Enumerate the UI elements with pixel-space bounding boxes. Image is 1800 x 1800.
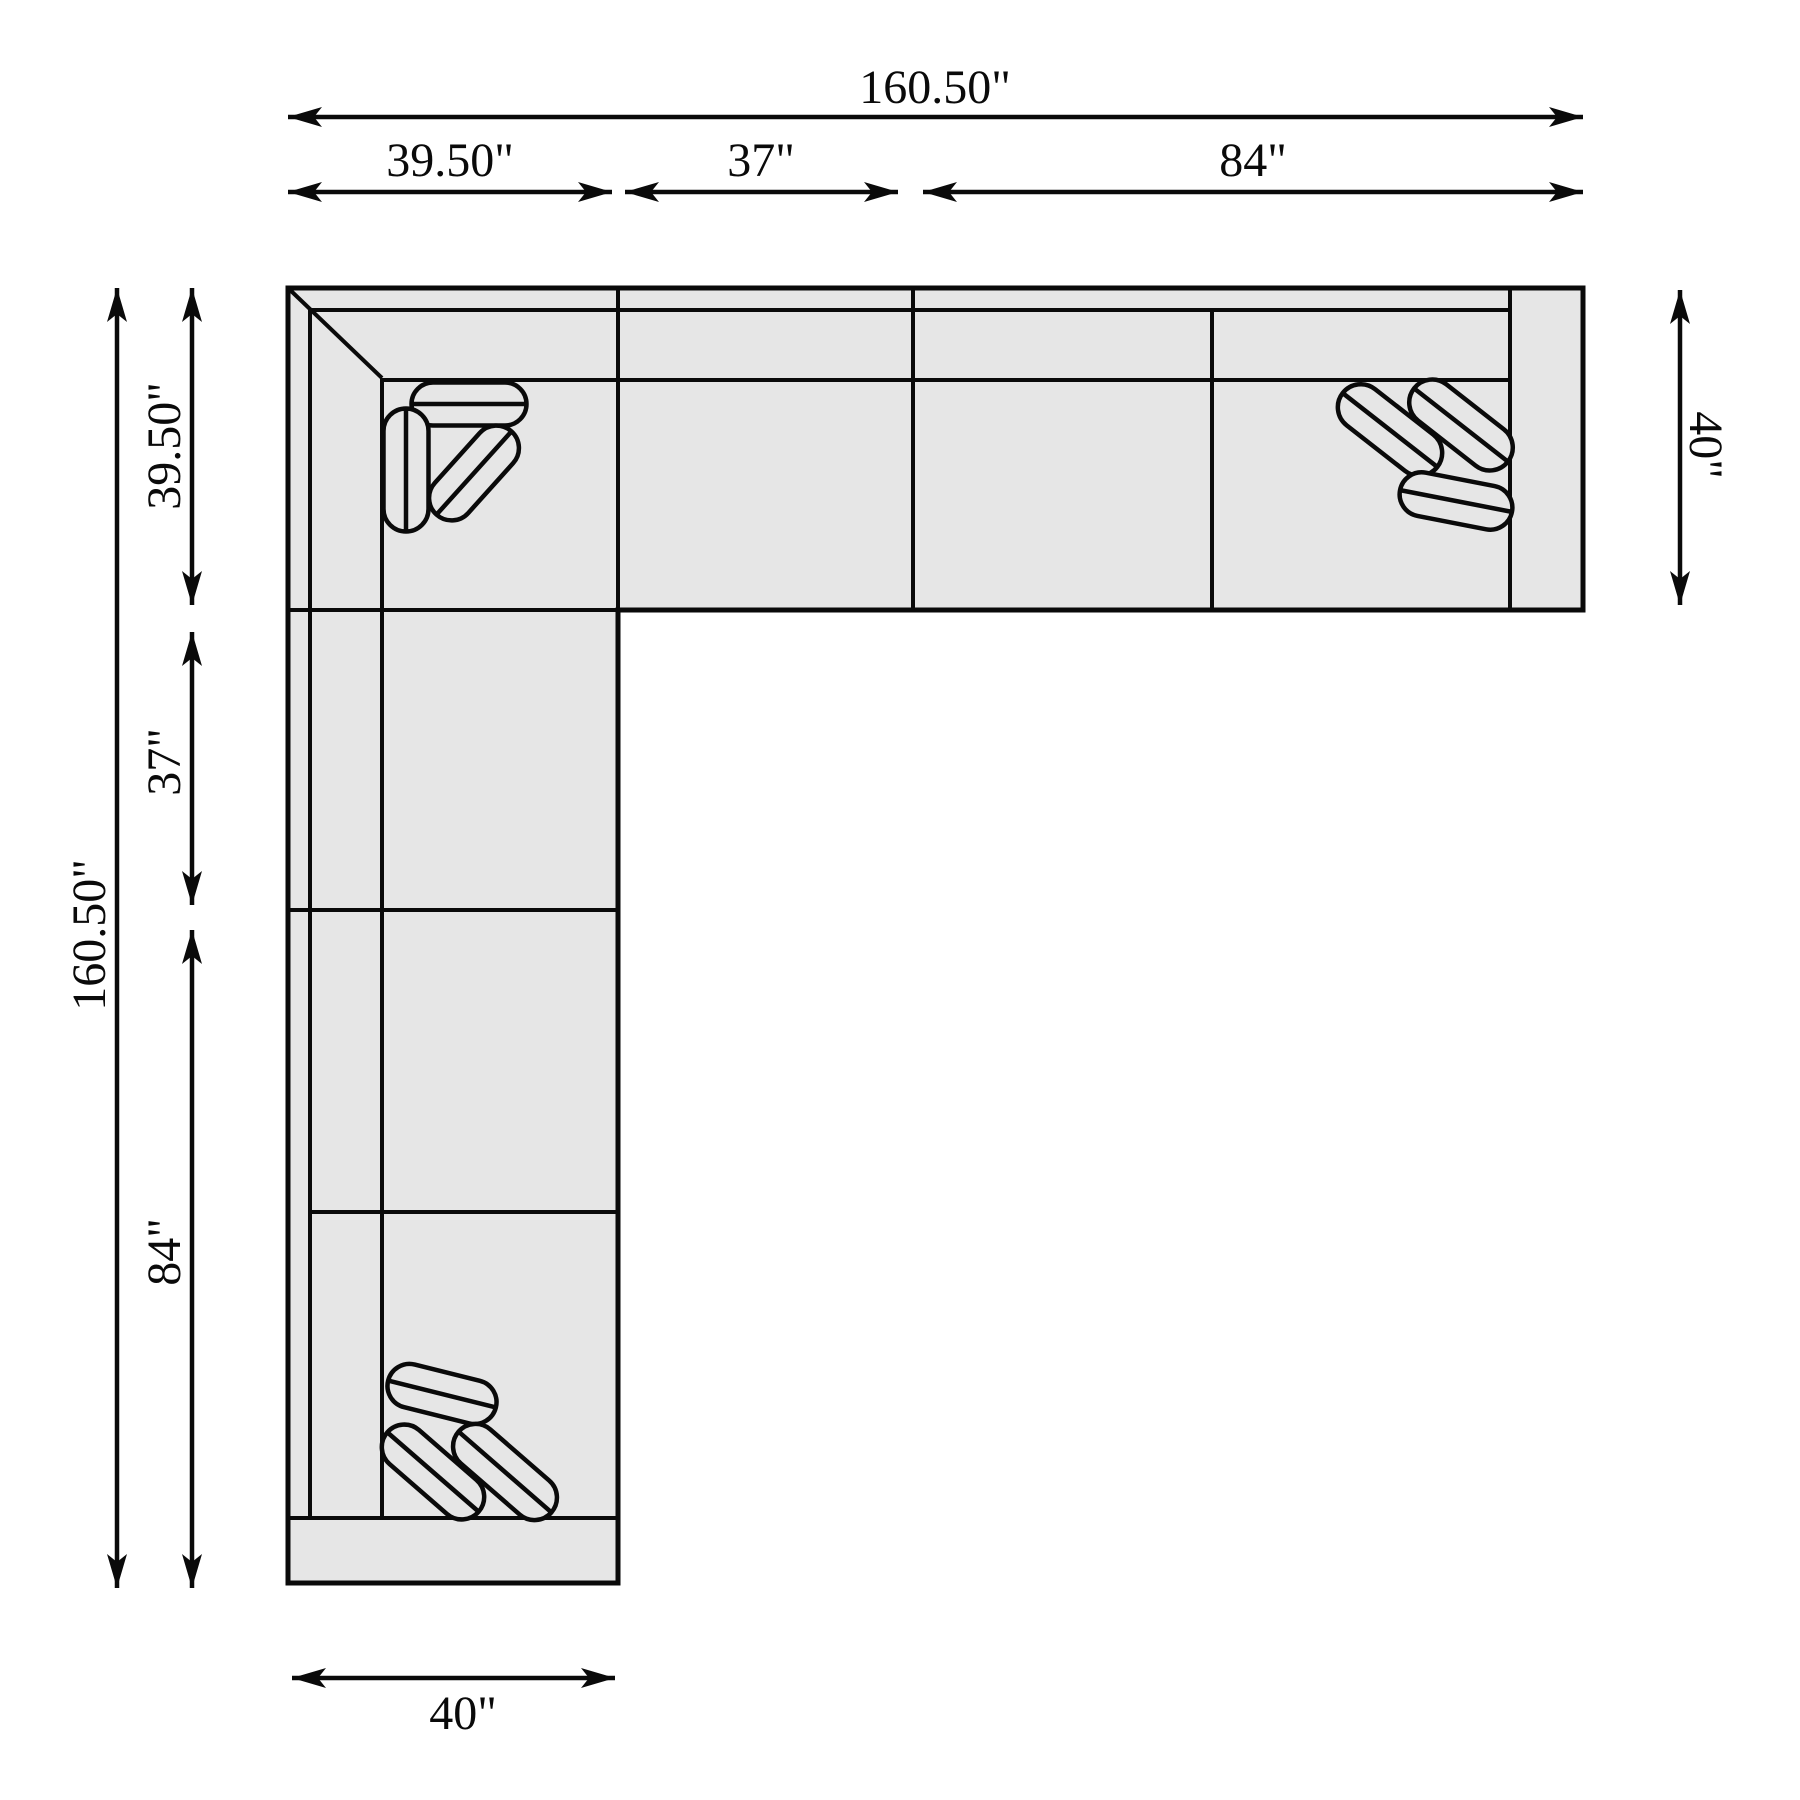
dim-bottom-40: 40"	[292, 1668, 615, 1740]
dim-left-total-label: 160.50"	[63, 859, 116, 1011]
dim-top-39-50-label: 39.50"	[386, 134, 514, 187]
dim-top-total: 160.50"	[288, 61, 1583, 127]
dim-top-84-label: 84"	[1219, 134, 1287, 187]
dim-top-39-50: 39.50"	[288, 134, 612, 202]
dim-left-39-50-label: 39.50"	[138, 382, 191, 510]
dim-right-40-label: 40"	[1679, 411, 1732, 479]
dim-left-84: 84"	[138, 930, 202, 1588]
dim-left-total: 160.50"	[63, 288, 127, 1588]
dim-left-39-50: 39.50"	[138, 288, 202, 605]
dim-right-40: 40"	[1670, 290, 1732, 605]
dim-left-84-label: 84"	[138, 1218, 191, 1286]
sofa-dimension-diagram: 160.50"39.50"37"84"160.50"39.50"37"84"40…	[0, 0, 1800, 1800]
dim-top-total-label: 160.50"	[859, 61, 1011, 114]
dim-bottom-40-label: 40"	[429, 1687, 497, 1740]
dim-top-84: 84"	[923, 134, 1583, 202]
dim-top-37-label: 37"	[727, 134, 795, 187]
diagram-canvas: 160.50"39.50"37"84"160.50"39.50"37"84"40…	[0, 0, 1800, 1800]
pillow-2	[384, 409, 429, 532]
dim-left-37-label: 37"	[138, 728, 191, 796]
pillow-1	[412, 383, 527, 426]
dim-left-37: 37"	[138, 632, 202, 905]
dim-top-37: 37"	[625, 134, 898, 202]
